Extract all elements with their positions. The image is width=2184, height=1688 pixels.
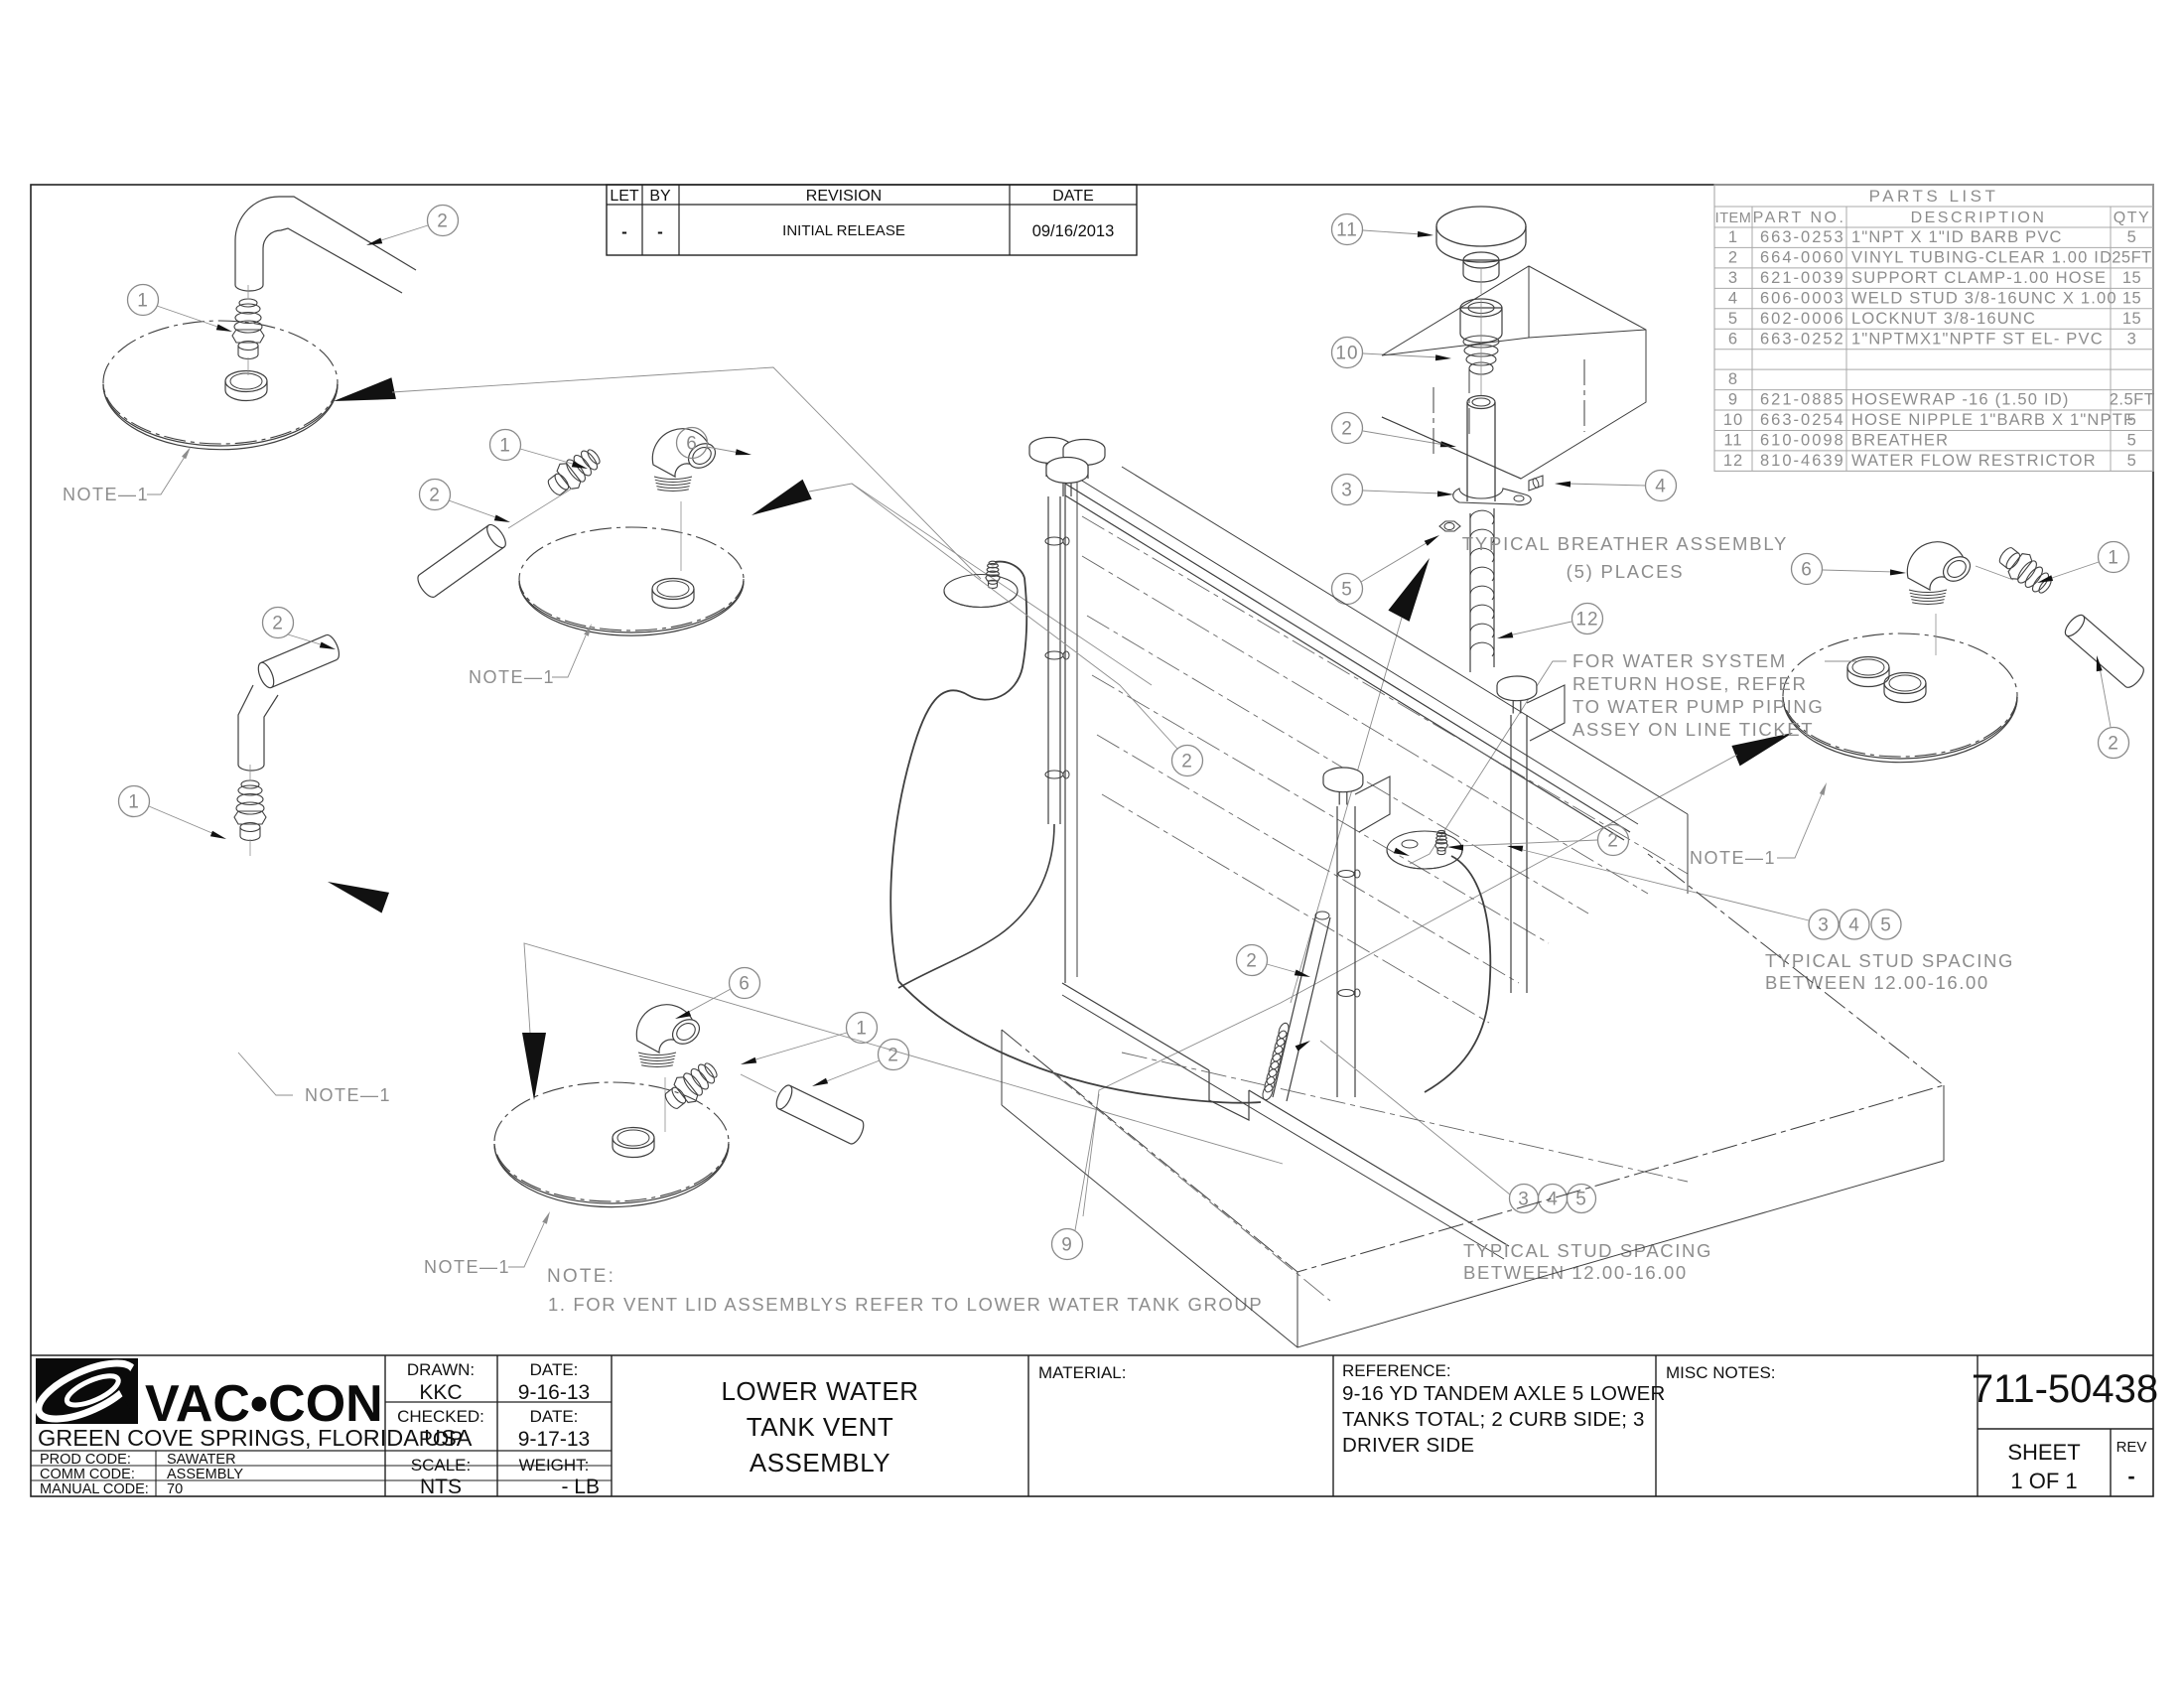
svg-text:MISC NOTES:: MISC NOTES:: [1666, 1363, 1776, 1382]
svg-text:15: 15: [2122, 310, 2141, 328]
svg-text:ASSEMBLY: ASSEMBLY: [750, 1448, 890, 1477]
svg-text:8: 8: [1728, 370, 1738, 388]
svg-text:DRIVER SIDE: DRIVER SIDE: [1342, 1434, 1474, 1457]
svg-text:606-0003: 606-0003: [1760, 289, 1845, 307]
svg-text:TO WATER PUMP PIPING: TO WATER PUMP PIPING: [1572, 696, 1824, 717]
svg-text:664-0060: 664-0060: [1760, 248, 1845, 266]
svg-text:LOCKNUT 3/8-16UNC: LOCKNUT 3/8-16UNC: [1851, 310, 2036, 328]
svg-text:602-0006: 602-0006: [1760, 310, 1845, 328]
svg-text:2: 2: [1341, 418, 1353, 439]
svg-text:2: 2: [887, 1045, 899, 1065]
svg-text:2: 2: [429, 485, 441, 505]
svg-text:1: 1: [1728, 228, 1738, 246]
svg-text:2.5FT: 2.5FT: [2110, 391, 2155, 409]
svg-text:2: 2: [2108, 733, 2119, 754]
svg-text:621-0885: 621-0885: [1760, 391, 1845, 409]
svg-text:-: -: [657, 222, 663, 241]
svg-text:09/16/2013: 09/16/2013: [1032, 222, 1115, 240]
svg-text:15: 15: [2122, 289, 2141, 307]
svg-text:PARTS LIST: PARTS LIST: [1869, 187, 1999, 206]
svg-text:15: 15: [2122, 269, 2141, 287]
svg-text:DATE:: DATE:: [530, 1407, 579, 1426]
svg-text:9-16-13: 9-16-13: [518, 1381, 590, 1404]
svg-text:WEIGHT:: WEIGHT:: [519, 1456, 590, 1475]
svg-text:(5) PLACES: (5) PLACES: [1567, 561, 1685, 582]
svg-text:TANK VENT: TANK VENT: [747, 1412, 893, 1442]
svg-text:REFERENCE:: REFERENCE:: [1342, 1361, 1451, 1380]
svg-text:GREEN COVE SPRINGS, FLORIDA US: GREEN COVE SPRINGS, FLORIDA USA: [38, 1425, 473, 1451]
svg-text:DATE:: DATE:: [530, 1360, 579, 1379]
svg-text:NTS: NTS: [420, 1476, 462, 1498]
svg-text:9: 9: [1061, 1234, 1073, 1255]
svg-text:TYPICAL STUD SPACING: TYPICAL STUD SPACING: [1463, 1240, 1712, 1261]
svg-text:VINYL TUBING-CLEAR 1.00 ID: VINYL TUBING-CLEAR 1.00 ID: [1851, 248, 2113, 266]
svg-text:9-17-13: 9-17-13: [518, 1428, 590, 1451]
svg-text:TANKS TOTAL; 2 CURB SIDE; 3: TANKS TOTAL; 2 CURB SIDE; 3: [1342, 1408, 1645, 1431]
svg-text:NOTE—1: NOTE—1: [1690, 848, 1776, 868]
svg-text:610-0098: 610-0098: [1760, 432, 1845, 450]
svg-text:REVISION: REVISION: [806, 188, 882, 205]
svg-text:SCALE:: SCALE:: [411, 1456, 471, 1475]
svg-text:LOWER WATER: LOWER WATER: [721, 1376, 918, 1406]
svg-text:5: 5: [2127, 452, 2137, 470]
svg-text:NOTE—1: NOTE—1: [63, 485, 149, 504]
svg-text:621-0039: 621-0039: [1760, 269, 1845, 287]
svg-text:FOR WATER SYSTEM: FOR WATER SYSTEM: [1572, 650, 1787, 671]
svg-text:BY: BY: [649, 188, 671, 205]
svg-text:INITIAL RELEASE: INITIAL RELEASE: [782, 222, 905, 239]
svg-text:1 OF 1: 1 OF 1: [2010, 1469, 2077, 1493]
svg-text:BETWEEN 12.00-16.00: BETWEEN 12.00-16.00: [1463, 1262, 1688, 1283]
svg-text:3: 3: [1818, 914, 1830, 935]
svg-text:4: 4: [1728, 289, 1738, 307]
svg-text:6: 6: [1728, 330, 1738, 348]
svg-text:663-0254: 663-0254: [1760, 411, 1845, 429]
svg-text:11: 11: [1336, 219, 1358, 240]
svg-text:WELD STUD 3/8-16UNC X 1.00: WELD STUD 3/8-16UNC X 1.00: [1851, 289, 2117, 307]
svg-text:663-0253: 663-0253: [1760, 228, 1845, 246]
svg-text:3: 3: [1728, 269, 1738, 287]
svg-text:1: 1: [856, 1018, 868, 1039]
svg-text:ITEM: ITEM: [1715, 211, 1752, 226]
svg-text:PART NO.: PART NO.: [1753, 210, 1846, 226]
svg-text:5: 5: [1575, 1189, 1587, 1209]
svg-text:6: 6: [686, 433, 698, 454]
svg-text:4: 4: [1655, 476, 1667, 496]
svg-text:DRAWN:: DRAWN:: [407, 1360, 475, 1379]
svg-text:DATE: DATE: [1052, 188, 1093, 205]
svg-text:12: 12: [1575, 609, 1598, 630]
svg-text:12: 12: [1723, 452, 1743, 470]
svg-text:5: 5: [2127, 432, 2137, 450]
svg-text:NOTE:: NOTE:: [547, 1266, 615, 1287]
svg-text:10: 10: [1723, 411, 1743, 429]
svg-text:1: 1: [137, 290, 149, 311]
svg-text:1: 1: [128, 791, 140, 812]
svg-text:2: 2: [437, 211, 449, 231]
svg-text:ASSEMBLY: ASSEMBLY: [167, 1467, 243, 1482]
svg-text:711-50438: 711-50438: [1972, 1367, 2158, 1411]
svg-text:5: 5: [1341, 579, 1353, 600]
svg-text:SAWATER: SAWATER: [167, 1452, 236, 1468]
svg-text:WATER FLOW RESTRICTOR: WATER FLOW RESTRICTOR: [1851, 452, 2097, 470]
svg-text:REV: REV: [2116, 1439, 2147, 1456]
svg-text:663-0252: 663-0252: [1760, 330, 1845, 348]
svg-text:QTY: QTY: [2114, 210, 2150, 226]
svg-text:NOTE—1: NOTE—1: [305, 1085, 391, 1105]
svg-text:HOSE NIPPLE 1"BARB X 1"NPTF: HOSE NIPPLE 1"BARB X 1"NPTF: [1851, 411, 2134, 429]
svg-text:-: -: [2127, 1464, 2134, 1488]
svg-text:RETURN HOSE, REFER: RETURN HOSE, REFER: [1572, 673, 1807, 694]
svg-text:2: 2: [1181, 751, 1193, 772]
svg-text:1. FOR VENT LID ASSEMBLYS REFE: 1. FOR VENT LID ASSEMBLYS REFER TO LOWER…: [548, 1294, 1263, 1315]
svg-text:5: 5: [2127, 411, 2137, 429]
svg-text:CHECKED:: CHECKED:: [397, 1407, 484, 1426]
svg-text:- LB: - LB: [561, 1476, 600, 1498]
svg-text:10: 10: [1335, 343, 1358, 363]
svg-text:NOTE—1: NOTE—1: [469, 667, 555, 687]
svg-text:HOSEWRAP -16 (1.50 ID): HOSEWRAP -16 (1.50 ID): [1851, 391, 2070, 409]
svg-text:4: 4: [1848, 914, 1860, 935]
svg-text:MANUAL CODE:: MANUAL CODE:: [40, 1481, 149, 1497]
svg-text:11: 11: [1723, 432, 1742, 450]
svg-text:-: -: [621, 222, 627, 241]
svg-text:LET: LET: [610, 188, 639, 205]
svg-text:DESCRIPTION: DESCRIPTION: [1911, 210, 2047, 226]
svg-text:3: 3: [2127, 330, 2137, 348]
svg-text:70: 70: [167, 1481, 183, 1497]
svg-text:KKC: KKC: [419, 1381, 462, 1404]
svg-text:1"NPT X 1"ID BARB PVC: 1"NPT X 1"ID BARB PVC: [1851, 228, 2063, 246]
svg-text:810-4639: 810-4639: [1760, 452, 1845, 470]
svg-text:5: 5: [1880, 914, 1892, 935]
svg-text:COMM CODE:: COMM CODE:: [40, 1467, 135, 1482]
svg-text:2: 2: [1246, 950, 1258, 971]
svg-text:6: 6: [1801, 559, 1813, 580]
svg-text:ASSEY ON LINE TICKET: ASSEY ON LINE TICKET: [1572, 719, 1814, 740]
svg-text:3: 3: [1341, 480, 1353, 500]
svg-text:SUPPORT CLAMP-1.00 HOSE: SUPPORT CLAMP-1.00 HOSE: [1851, 269, 2107, 287]
svg-text:6: 6: [739, 973, 751, 994]
svg-text:BREATHER: BREATHER: [1851, 432, 1949, 450]
svg-text:PROD CODE:: PROD CODE:: [40, 1452, 131, 1468]
svg-text:MATERIAL:: MATERIAL:: [1038, 1363, 1126, 1382]
svg-text:TYPICAL BREATHER ASSEMBLY: TYPICAL BREATHER ASSEMBLY: [1462, 533, 1788, 554]
svg-text:25FT: 25FT: [2112, 248, 2152, 266]
svg-text:POP: POP: [419, 1428, 463, 1451]
svg-text:5: 5: [2127, 228, 2137, 246]
svg-text:TYPICAL STUD SPACING: TYPICAL STUD SPACING: [1765, 950, 2014, 971]
svg-text:2: 2: [1728, 248, 1738, 266]
svg-text:9-16 YD TANDEM AXLE 5 LOWER: 9-16 YD TANDEM AXLE 5 LOWER: [1342, 1382, 1666, 1405]
svg-text:1"NPTMX1"NPTF ST EL- PVC: 1"NPTMX1"NPTF ST EL- PVC: [1851, 330, 2104, 348]
svg-text:2: 2: [1607, 830, 1619, 851]
svg-text:9: 9: [1728, 391, 1738, 409]
svg-text:SHEET: SHEET: [2007, 1440, 2080, 1465]
svg-text:5: 5: [1728, 310, 1738, 328]
svg-text:2: 2: [272, 613, 284, 633]
svg-text:1: 1: [2108, 547, 2119, 568]
svg-text:NOTE—1: NOTE—1: [424, 1257, 510, 1277]
svg-text:BETWEEN 12.00-16.00: BETWEEN 12.00-16.00: [1765, 972, 1989, 993]
svg-text:1: 1: [499, 435, 511, 456]
